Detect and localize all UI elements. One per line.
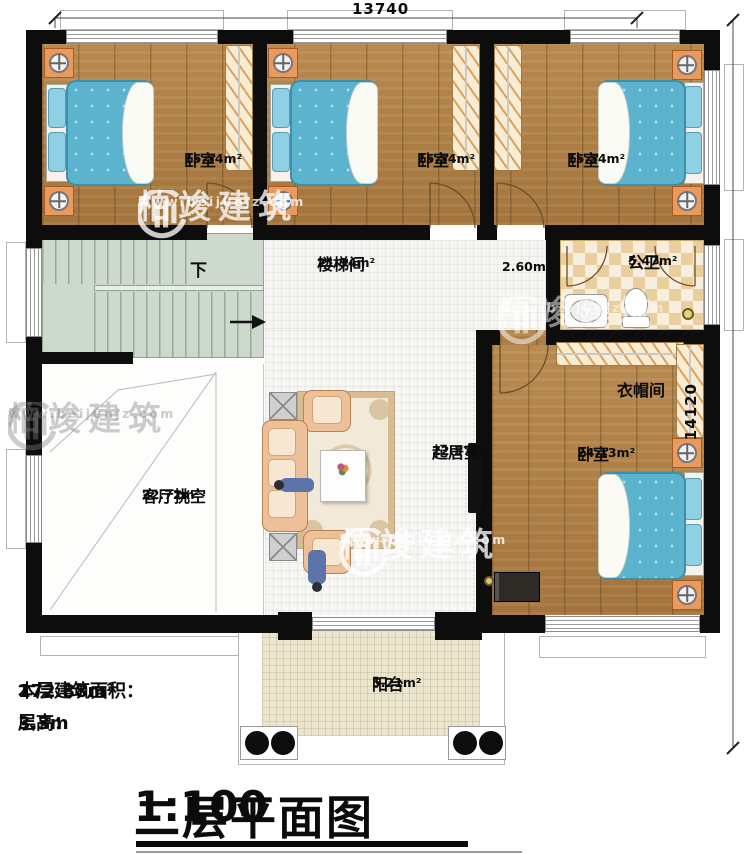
dimension-height: 14120 [682,383,700,440]
door-arc [207,183,252,228]
stairs-down-label: 下 [190,256,207,281]
title-scale: 1:100 [134,782,268,831]
title-underline-thin [136,851,522,853]
dimension-width: 13740 [352,0,409,18]
plan-linework [0,0,750,854]
floor-plan: 柏竣建筑 www.beijunjz.com 柏竣建筑 www.beijunjz.… [0,0,750,854]
height-note-value: 3.3m [18,708,69,740]
area-note-value: 172.88m² [18,676,114,708]
door-arc [430,183,475,228]
title-underline [136,841,468,847]
void-line [50,374,216,452]
door-arc [497,183,544,228]
dimension-line-top [55,18,637,28]
door-arc [567,246,607,286]
stair-arrow [230,315,266,329]
door-arc [500,345,548,393]
